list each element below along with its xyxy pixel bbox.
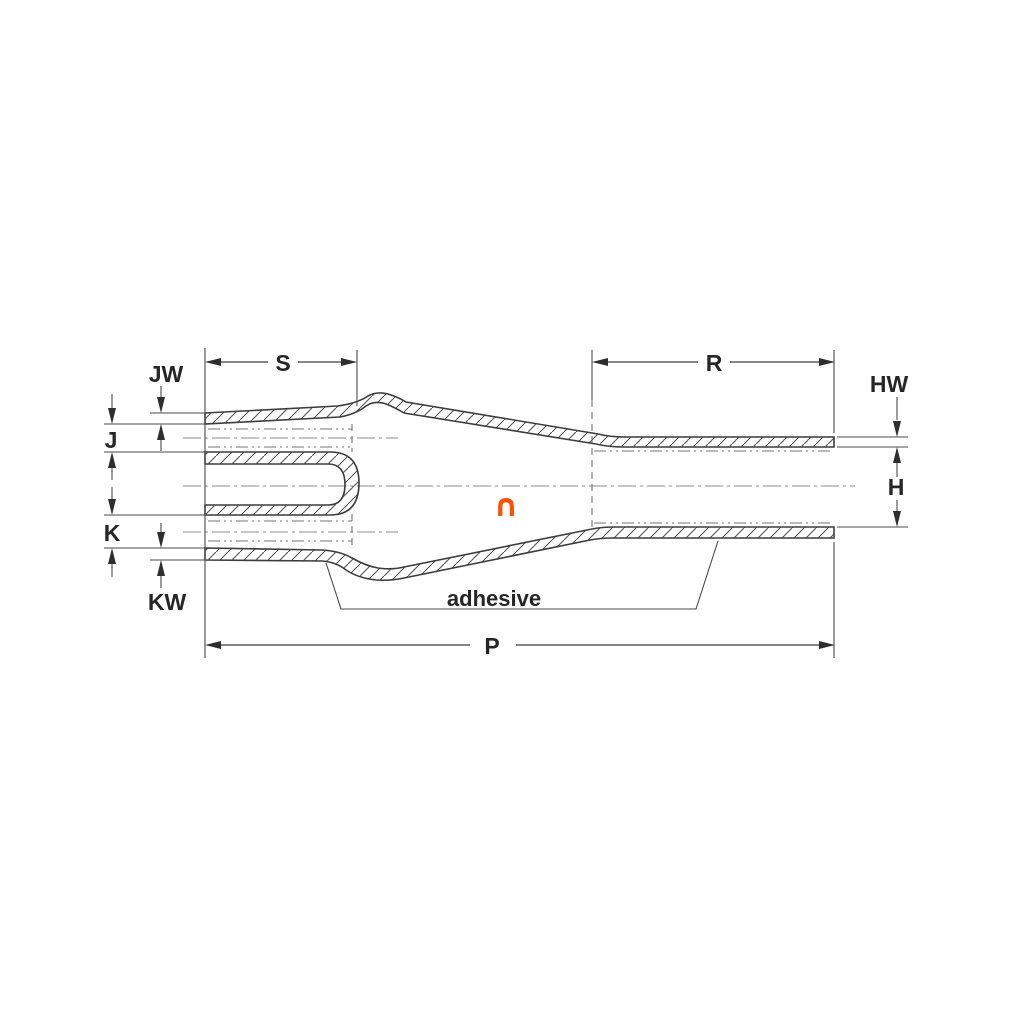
bottom-wall-section: [205, 527, 834, 580]
arrowhead-down: [157, 532, 165, 548]
dimension-label-h: H: [888, 474, 905, 500]
arrowhead-right: [819, 358, 835, 366]
adhesive-label: adhesive: [447, 586, 541, 611]
dimension-label-j: J: [105, 427, 118, 453]
top-wall-section: [205, 393, 834, 447]
dimension-hw: HW: [870, 371, 909, 437]
arrowhead-down: [893, 511, 901, 527]
dimension-p: P: [205, 633, 835, 659]
dimension-label-hw: HW: [870, 371, 909, 397]
dimension-j: J: [105, 394, 118, 480]
dimension-label-r: R: [706, 350, 723, 376]
dimension-label-k: K: [104, 520, 121, 546]
arrowhead-up: [108, 548, 116, 564]
arrowhead-up: [893, 447, 901, 463]
intersection-icon: ∩: [493, 488, 518, 524]
arrowhead-down: [893, 421, 901, 437]
arrowhead-down: [157, 397, 165, 413]
arrowhead-up: [157, 424, 165, 440]
dimension-kw: KW: [148, 523, 187, 615]
dimension-s: S: [205, 350, 357, 376]
dimension-label-s: S: [275, 350, 290, 376]
arrowhead-down: [108, 408, 116, 424]
part-cross-section: [205, 393, 834, 580]
dimension-label-p: P: [484, 633, 499, 659]
dimension-jw: JW: [149, 361, 184, 451]
arrowhead-up: [108, 452, 116, 468]
arrowhead-left: [205, 641, 221, 649]
arrowhead-left: [592, 358, 608, 366]
dimension-r: R: [592, 350, 835, 376]
arrowhead-right: [819, 641, 835, 649]
arrowhead-right: [341, 358, 357, 366]
dimension-label-kw: KW: [148, 589, 187, 615]
technical-drawing: S R P JW J K: [0, 0, 1010, 1010]
crotch-web-section: [205, 452, 359, 515]
arrowhead-down: [108, 499, 116, 515]
dimension-label-jw: JW: [149, 361, 184, 387]
arrowhead-left: [205, 358, 221, 366]
dimension-h: H: [888, 447, 905, 527]
dimension-k: K: [104, 487, 121, 577]
arrowhead-up: [157, 560, 165, 576]
